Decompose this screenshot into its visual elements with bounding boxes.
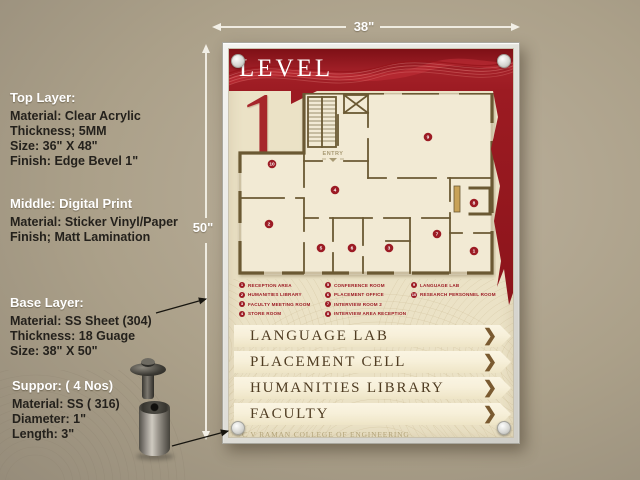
svg-text:5: 5 (320, 246, 323, 252)
legend-label: CONFERENCE ROOM (334, 283, 385, 288)
legend-label: LANGUAGE LAB (420, 283, 459, 288)
room-bar: LANGUAGE LAB❯ (234, 325, 511, 347)
legend-label: INTERVIEW AREA RECEPTION (334, 311, 406, 316)
legend-item: 2HUMANITIES LIBRARY (239, 292, 325, 298)
svg-text:7: 7 (436, 232, 439, 238)
legend-number-dot: 9 (411, 282, 417, 288)
legend-number-dot: 6 (325, 292, 331, 298)
dimension-arrowhead-up-icon (202, 44, 210, 53)
legend-label: HUMANITIES LIBRARY (248, 292, 302, 297)
dimension-arrowhead-down-icon (202, 431, 210, 440)
sign-face: LEVEL 1 (228, 48, 514, 438)
spec-line: Finish: Edge Bevel 1" (10, 154, 141, 169)
legend-item: 4STORE ROOM (239, 311, 325, 317)
legend-number-dot: 2 (239, 292, 245, 298)
legend-item: 8INTERVIEW AREA RECEPTION (325, 311, 411, 317)
legend-item: 3FACULTY MEETING ROOM (239, 301, 325, 307)
spec-line: Material: Clear Acrylic (10, 109, 141, 124)
corner-standoff-icon (231, 54, 245, 68)
spec-line: Diameter: 1" (12, 412, 120, 427)
support-specs: Material: SS ( 316)Diameter: 1"Length: 3… (12, 397, 120, 442)
legend-item: 1RECEPTION AREA (239, 282, 325, 288)
spec-line: Material: SS Sheet (304) (10, 314, 152, 329)
legend-number-dot: 8 (325, 311, 331, 317)
entry-label: ENTRY (323, 151, 344, 157)
corner-standoff-icon (497, 54, 511, 68)
legend-label: FACULTY MEETING ROOM (248, 302, 311, 307)
chevron-right-icon: ❯ (483, 378, 497, 398)
legend-number-dot: 1 (239, 282, 245, 288)
legend-number-dot: 4 (239, 311, 245, 317)
top-layer-specs: Material: Clear AcrylicThickness; 5MMSiz… (10, 109, 141, 169)
support-standoff-image (139, 401, 170, 457)
legend-label: RESEARCH PERSONNEL ROOM (420, 292, 496, 297)
nav-list: LANGUAGE LAB❯PLACEMENT CELL❯HUMANITIES L… (234, 325, 511, 429)
legend-number-dot: 10 (411, 292, 417, 298)
height-dimension-line (205, 52, 207, 218)
legend-label: PLACEMENT OFFICE (334, 292, 384, 297)
floor-plan: ENTRY 10249856371 (234, 93, 496, 285)
middle-layer-title: Middle: Digital Print (10, 196, 178, 211)
door-accent (454, 186, 460, 212)
standoff-top (139, 401, 170, 414)
room-bar: PLACEMENT CELL❯ (234, 351, 511, 373)
chevron-right-icon: ❯ (483, 352, 497, 372)
width-dimension-line (380, 26, 512, 28)
spec-line: Finish; Matt Lamination (10, 230, 178, 245)
legend-number-dot: 3 (239, 301, 245, 307)
svg-text:2: 2 (268, 222, 271, 228)
spec-line: Thickness: 18 Guage (10, 329, 152, 344)
dimension-arrowhead-left-icon (212, 23, 221, 31)
legend-item: 10RESEARCH PERSONNEL ROOM (411, 292, 507, 298)
svg-text:9: 9 (427, 135, 430, 141)
base-layer-arrow (156, 299, 206, 313)
svg-text:3: 3 (388, 246, 391, 252)
legend-label: STORE ROOM (248, 311, 281, 316)
base-layer-note: Base Layer: Material: SS Sheet (304)Thic… (10, 295, 152, 359)
chevron-right-icon: ❯ (483, 326, 497, 346)
legend-item: 6PLACEMENT OFFICE (325, 292, 411, 298)
screw-stem (142, 373, 154, 399)
legend-item: 5CONFERENCE ROOM (325, 282, 411, 288)
svg-text:1: 1 (473, 249, 476, 255)
spec-line: Length: 3" (12, 427, 120, 442)
room-bar-label: HUMANITIES LIBRARY (250, 377, 445, 399)
design-mockup-stage: 38" 50" Top Layer: Material: Clear Acryl… (0, 0, 640, 480)
svg-text:6: 6 (351, 246, 354, 252)
svg-text:4: 4 (334, 188, 337, 194)
support-title: Suppor: ( 4 Nos) (12, 378, 120, 393)
chevron-right-icon: ❯ (483, 404, 497, 424)
room-bar-label: LANGUAGE LAB (250, 325, 389, 347)
legend: 1RECEPTION AREA2HUMANITIES LIBRARY3FACUL… (239, 282, 507, 320)
spec-line: Size: 36" X 48" (10, 139, 141, 154)
room-bar-label: FACULTY (250, 403, 329, 425)
room-bar: HUMANITIES LIBRARY❯ (234, 377, 511, 399)
legend-number-dot: 7 (325, 301, 331, 307)
legend-item: 9LANGUAGE LAB (411, 282, 507, 288)
sign-panel: LEVEL 1 (222, 42, 520, 444)
corner-standoff-icon (497, 421, 511, 435)
red-jagged-band (485, 91, 514, 311)
height-dimension-label: 50" (188, 220, 218, 235)
svg-text:10: 10 (269, 162, 275, 168)
room-bar: FACULTY❯ (234, 403, 511, 425)
top-layer-note: Top Layer: Material: Clear AcrylicThickn… (10, 90, 141, 169)
dimension-arrowhead-right-icon (511, 23, 520, 31)
support-note: Suppor: ( 4 Nos) Material: SS ( 316)Diam… (12, 378, 120, 442)
spec-line: Thickness; 5MM (10, 124, 141, 139)
width-dimension-label: 38" (346, 19, 382, 34)
footer-text: C V RAMAN COLLEGE OF ENGINEERING (242, 430, 410, 438)
support-screw-image (127, 357, 169, 401)
base-layer-specs: Material: SS Sheet (304)Thickness: 18 Gu… (10, 314, 152, 359)
standoff-body (139, 407, 170, 456)
legend-number-dot: 5 (325, 282, 331, 288)
corner-standoff-icon (231, 421, 245, 435)
spec-line: Material: SS ( 316) (12, 397, 120, 412)
middle-layer-specs: Material: Sticker Vinyl/PaperFinish; Mat… (10, 215, 178, 245)
svg-text:8: 8 (473, 201, 476, 207)
legend-label: RECEPTION AREA (248, 283, 292, 288)
spec-line: Material: Sticker Vinyl/Paper (10, 215, 178, 230)
legend-item: 7INTERVIEW ROOM 2 (325, 301, 411, 307)
middle-layer-note: Middle: Digital Print Material: Sticker … (10, 196, 178, 245)
screw-cap (141, 358, 155, 367)
width-dimension-line (220, 26, 346, 28)
room-bar-label: PLACEMENT CELL (250, 351, 406, 373)
height-dimension-line (205, 243, 207, 431)
top-layer-title: Top Layer: (10, 90, 141, 105)
base-layer-title: Base Layer: (10, 295, 152, 310)
legend-label: INTERVIEW ROOM 2 (334, 302, 382, 307)
